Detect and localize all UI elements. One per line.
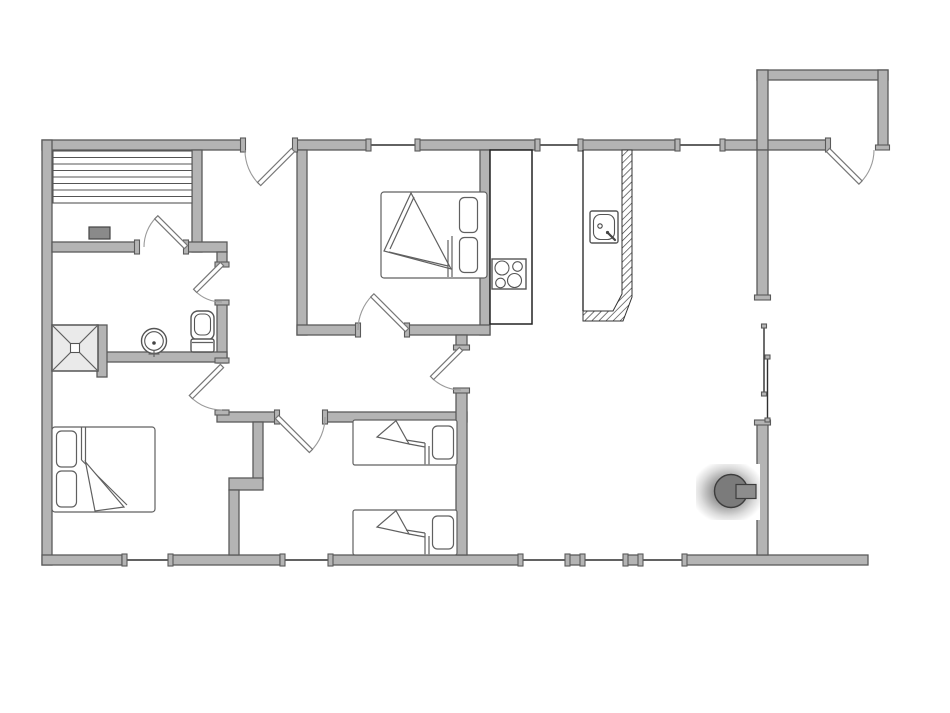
- window-cap: [122, 554, 127, 566]
- single-bed: [353, 420, 457, 465]
- window-cap: [366, 139, 371, 151]
- pillow: [57, 471, 77, 507]
- sliding-door-cap: [762, 392, 767, 396]
- double-bed: [52, 427, 155, 512]
- door-leaf: [430, 347, 462, 379]
- door-leaf: [194, 262, 224, 292]
- wall-segment: [170, 555, 280, 565]
- door: [241, 138, 298, 186]
- window-cap: [675, 139, 680, 151]
- wall-segment: [192, 150, 202, 252]
- door: [135, 216, 189, 254]
- window-cap: [578, 139, 583, 151]
- sauna: [53, 151, 192, 239]
- kitchen-counter: [490, 150, 532, 324]
- wall-segment: [253, 422, 263, 480]
- window-cap: [518, 554, 523, 566]
- sliding-door: [762, 324, 771, 422]
- door-jamb-cap: [241, 138, 246, 152]
- burner: [495, 261, 509, 275]
- window-cap: [328, 554, 333, 566]
- window-cap: [280, 554, 285, 566]
- floor-plan-canvas: [0, 0, 950, 713]
- sliding-door-cap: [765, 418, 770, 422]
- burner: [508, 274, 522, 288]
- door-leaf: [826, 148, 862, 184]
- window-cap: [535, 139, 540, 151]
- wall-segment: [42, 140, 243, 150]
- kitchen: [490, 150, 632, 324]
- window-cap: [168, 554, 173, 566]
- toilet-seat: [195, 314, 211, 335]
- wall-segment: [186, 242, 227, 252]
- door-arc: [144, 217, 156, 247]
- toilet-tank: [191, 339, 214, 352]
- door: [430, 345, 469, 393]
- wall-segment: [297, 150, 307, 335]
- window-cap: [720, 139, 725, 151]
- door-jamb-cap: [876, 145, 890, 150]
- shower: [52, 325, 98, 371]
- door-jamb-cap: [755, 295, 771, 300]
- pillow: [460, 238, 478, 273]
- porch-wall: [878, 70, 888, 148]
- wall-segment: [229, 478, 263, 490]
- wall-segment: [330, 555, 520, 565]
- cooktop: [492, 259, 526, 289]
- door-leaf: [371, 294, 409, 332]
- stove-flue: [736, 485, 756, 499]
- wall-segment: [580, 140, 675, 150]
- door-leaf: [258, 148, 295, 185]
- floor-plan: [0, 0, 950, 713]
- kitchen-sink: [590, 211, 618, 243]
- burner: [513, 262, 523, 272]
- sink-drain: [598, 224, 602, 228]
- porch-wall: [757, 70, 768, 150]
- wall-segment: [456, 390, 467, 555]
- wall-segment: [407, 325, 490, 335]
- door-arc: [861, 150, 875, 183]
- sauna-heater: [89, 227, 110, 239]
- double-bed: [381, 192, 487, 278]
- sliding-door-cap: [762, 324, 767, 328]
- wall-segment: [297, 325, 358, 335]
- door: [275, 410, 328, 453]
- wall-segment: [417, 140, 535, 150]
- window-cap: [415, 139, 420, 151]
- wall-segment: [722, 140, 828, 150]
- kitchen-island: [583, 150, 632, 321]
- sliding-door-cap: [765, 355, 770, 359]
- sink-faucet-knob: [606, 231, 609, 234]
- wall-segment: [684, 555, 868, 565]
- washbasin-inner: [145, 332, 164, 351]
- wall-segment: [97, 352, 227, 362]
- wall-segment: [42, 140, 52, 565]
- wall-segment: [52, 242, 137, 252]
- door-arc: [245, 150, 259, 184]
- pillow: [433, 426, 454, 459]
- burner: [496, 278, 506, 288]
- door: [356, 294, 410, 337]
- pillow: [460, 198, 478, 233]
- wall-segment: [42, 555, 122, 565]
- single-bed: [353, 510, 457, 555]
- window-cap: [638, 554, 643, 566]
- pillow: [433, 516, 454, 549]
- shower-drain: [71, 344, 80, 353]
- door: [826, 138, 875, 184]
- door-jamb-cap: [454, 388, 470, 393]
- door-jamb-cap: [215, 410, 229, 415]
- window-cap: [682, 554, 687, 566]
- door-arc: [191, 397, 222, 410]
- window-cap: [580, 554, 585, 566]
- window-cap: [623, 554, 628, 566]
- door: [194, 262, 229, 305]
- door-jamb-cap: [135, 240, 140, 254]
- washbasin-drain: [152, 341, 156, 345]
- door-leaf: [189, 364, 223, 398]
- porch-wall: [757, 70, 888, 80]
- window-cap: [565, 554, 570, 566]
- door-leaf: [275, 415, 312, 452]
- wall-segment: [229, 490, 239, 555]
- door-jamb-cap: [215, 358, 229, 363]
- pillow: [57, 431, 77, 467]
- wood-stove: [696, 464, 760, 520]
- wall-segment: [757, 150, 768, 297]
- door: [189, 358, 229, 415]
- toilet: [191, 311, 214, 352]
- wall-segment: [295, 140, 368, 150]
- door-leaf: [155, 216, 188, 249]
